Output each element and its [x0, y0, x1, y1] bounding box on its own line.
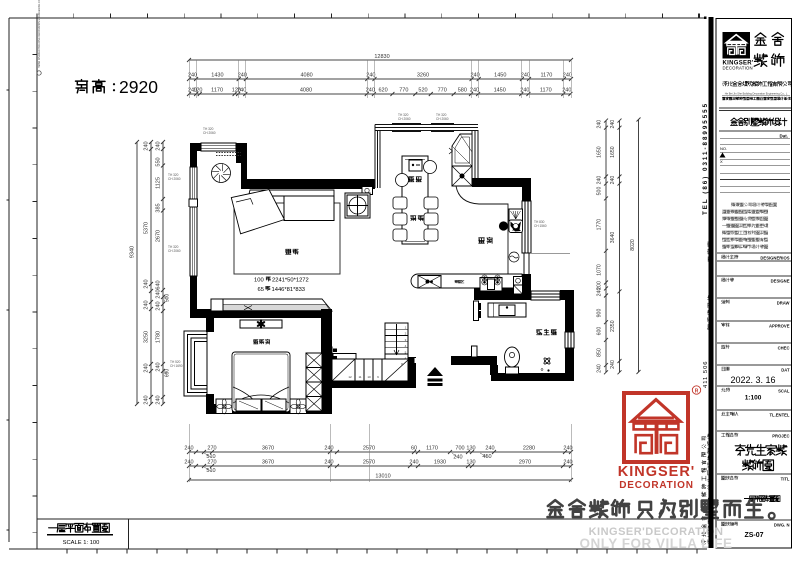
svg-text:240: 240 [597, 288, 603, 297]
svg-text:1:100: 1:100 [745, 395, 762, 402]
svg-text:130: 130 [466, 460, 475, 466]
svg-text:12: 12 [348, 375, 352, 379]
svg-text:240: 240 [610, 360, 616, 369]
svg-text:270: 270 [207, 446, 216, 452]
svg-text:CH 1690: CH 1690 [170, 364, 183, 368]
svg-text:60: 60 [411, 446, 417, 452]
svg-text:4080: 4080 [300, 73, 312, 79]
svg-text:2280: 2280 [523, 446, 535, 452]
svg-text:DECORATION: DECORATION [723, 66, 753, 71]
svg-text:1780: 1780 [156, 331, 162, 343]
svg-text:KINGSER': KINGSER' [618, 464, 696, 480]
svg-text:240: 240 [563, 73, 572, 79]
svg-text:DAT: DAT [781, 367, 790, 372]
svg-text:2022. 3. 16: 2022. 3. 16 [730, 375, 775, 385]
svg-text:DRAW: DRAW [777, 300, 790, 305]
svg-text:10: 10 [367, 375, 371, 379]
svg-text:ZS-07: ZS-07 [744, 532, 763, 539]
svg-text:240: 240 [156, 362, 162, 371]
svg-text:1170: 1170 [540, 88, 552, 94]
svg-text:NO.: NO. [720, 146, 727, 151]
svg-text:240: 240 [610, 120, 616, 129]
svg-text:770: 770 [399, 88, 408, 94]
svg-text:130: 130 [466, 446, 475, 452]
svg-text:240: 240 [485, 446, 494, 452]
svg-text:CH 2060: CH 2060 [168, 177, 181, 181]
svg-text:3260: 3260 [417, 73, 429, 79]
svg-text:DESIGNERIOS: DESIGNERIOS [760, 255, 789, 260]
svg-text:DESIGNE: DESIGNE [771, 278, 790, 283]
svg-text:3250: 3250 [144, 331, 150, 343]
svg-text:240: 240 [144, 300, 150, 309]
svg-text:DWG. N: DWG. N [774, 522, 790, 527]
svg-text:DECORATION: DECORATION [619, 480, 693, 491]
svg-text:240: 240 [324, 460, 333, 466]
svg-text:240: 240 [471, 73, 480, 79]
svg-text:500: 500 [597, 187, 603, 196]
svg-text:240: 240 [188, 73, 197, 79]
svg-text:240: 240 [562, 88, 571, 94]
svg-text:850: 850 [597, 348, 603, 357]
svg-text:240: 240 [144, 279, 150, 288]
svg-text:TITL: TITL [781, 476, 790, 481]
svg-text:8020: 8020 [630, 239, 636, 251]
svg-text:1450: 1450 [494, 73, 506, 79]
svg-text:240: 240 [144, 141, 150, 150]
svg-text:580: 580 [458, 88, 467, 94]
svg-text:Dat.: Dat. [779, 134, 788, 139]
svg-text:1070: 1070 [597, 264, 603, 276]
svg-text:1930: 1930 [434, 460, 446, 466]
svg-text:3670: 3670 [262, 446, 274, 452]
svg-text:240: 240 [156, 141, 162, 150]
svg-text:900: 900 [597, 309, 603, 318]
svg-text:HEBEI KINGSER BUILDING DECORAT: HEBEI KINGSER BUILDING DECORATION ENGINE… [38, 0, 41, 68]
svg-text:240: 240 [597, 364, 603, 373]
svg-text:1125: 1125 [156, 177, 162, 189]
svg-text:TL.ENTEL: TL.ENTEL [769, 412, 789, 417]
svg-text:640: 640 [156, 280, 162, 289]
svg-text:411 506: 411 506 [703, 360, 709, 388]
svg-text:13010: 13010 [375, 474, 390, 480]
svg-text:1170: 1170 [426, 446, 438, 452]
svg-text:CH 2060: CH 2060 [436, 117, 449, 121]
svg-text:240: 240 [597, 176, 603, 185]
svg-text:1170: 1170 [540, 73, 552, 79]
svg-text:240: 240 [597, 120, 603, 129]
svg-text:CH 2060: CH 2060 [168, 249, 181, 253]
svg-text:1650: 1650 [610, 146, 616, 158]
svg-text:3640: 3640 [610, 232, 616, 244]
svg-text:SCALE 1: 100: SCALE 1: 100 [63, 540, 100, 546]
svg-text:R: R [695, 388, 699, 394]
svg-text:600: 600 [597, 327, 603, 336]
svg-text:1446*81*833: 1446*81*833 [272, 287, 306, 293]
svg-text:2350: 2350 [610, 320, 616, 332]
svg-text:240: 240 [521, 73, 530, 79]
svg-text:1770: 1770 [597, 219, 603, 231]
svg-text:APPROVE: APPROVE [769, 323, 790, 328]
svg-text:TEL (86) 0311-88995555: TEL (86) 0311-88995555 [702, 102, 709, 215]
svg-text:385: 385 [156, 203, 162, 212]
svg-text:CH 2060: CH 2060 [398, 117, 411, 121]
svg-text:11: 11 [358, 375, 361, 379]
svg-text:1430: 1430 [211, 73, 223, 79]
svg-text:1450: 1450 [494, 88, 506, 94]
svg-text:3670: 3670 [262, 460, 274, 466]
svg-text:12830: 12830 [374, 54, 389, 60]
svg-text:1170: 1170 [211, 88, 223, 94]
svg-text:2920: 2920 [119, 77, 158, 97]
svg-text:620: 620 [379, 88, 388, 94]
svg-text:He Bei Jin She Building Decora: He Bei Jin She Building Decoration Engin… [725, 92, 788, 96]
svg-text:770: 770 [438, 88, 447, 94]
svg-text:520: 520 [418, 88, 427, 94]
svg-text:240: 240 [144, 363, 150, 372]
svg-text:240: 240 [470, 88, 479, 94]
svg-text:1650: 1650 [597, 146, 603, 158]
svg-text:9340: 9340 [130, 246, 136, 258]
svg-text:CH 1560: CH 1560 [534, 224, 547, 228]
svg-text:4080: 4080 [300, 88, 312, 94]
svg-text:240: 240 [324, 446, 333, 452]
svg-text:550: 550 [156, 157, 162, 166]
svg-text:65: 65 [258, 287, 264, 293]
svg-text:240: 240 [156, 301, 162, 310]
svg-text:2670: 2670 [156, 230, 162, 242]
svg-text:700: 700 [455, 446, 464, 452]
svg-text:240: 240 [156, 289, 162, 298]
svg-text:240: 240 [366, 73, 375, 79]
svg-text:240: 240 [156, 395, 162, 404]
svg-text:240: 240 [610, 176, 616, 185]
svg-text:CHEC: CHEC [778, 345, 790, 350]
svg-text:X: X [720, 159, 723, 164]
svg-text:2970: 2970 [519, 460, 531, 466]
svg-text:100: 100 [254, 278, 264, 284]
svg-text:CH 2060: CH 2060 [203, 131, 216, 135]
svg-text:PROJEC: PROJEC [772, 433, 789, 438]
svg-text:240: 240 [238, 73, 247, 79]
svg-text:240: 240 [144, 395, 150, 404]
svg-text:270: 270 [207, 460, 216, 466]
svg-text:SCAL: SCAL [778, 388, 790, 393]
svg-text:5370: 5370 [144, 222, 150, 234]
svg-text:2241*50*1272: 2241*50*1272 [272, 278, 309, 284]
